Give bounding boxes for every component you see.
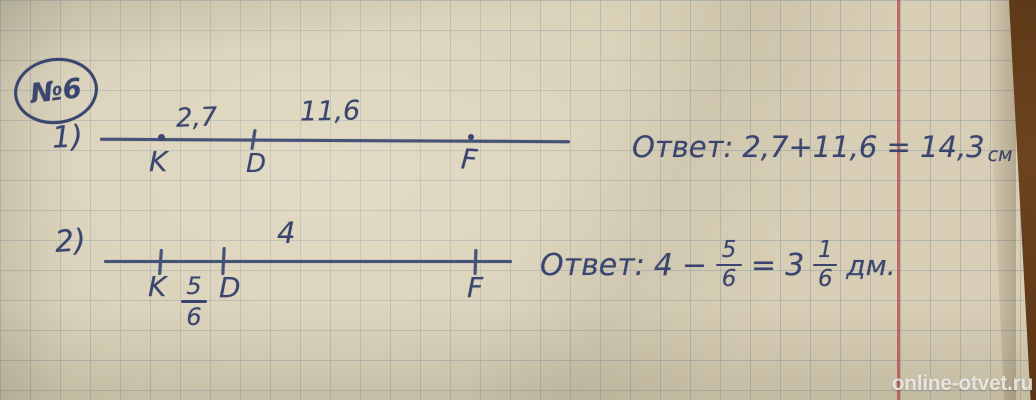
red-margin-line — [897, 0, 900, 400]
item-2-label: 2) — [54, 225, 87, 259]
answer-2-fraction-1-numerator: 5 — [722, 239, 737, 262]
notebook-photo: №6 1) K D F 2,7 11,6 Ответ: 2,7+11,6 = 1… — [0, 0, 1036, 400]
answer-2-whole-part: 3 — [785, 248, 804, 283]
point-k1-label: K — [149, 147, 167, 176]
answer-2-fraction-2-denominator: 6 — [818, 268, 833, 291]
answer-2-fraction-1-denominator: 6 — [722, 268, 737, 291]
item-1-label: 1) — [51, 121, 83, 154]
watermark: online-otvet.ru — [892, 372, 1033, 396]
answer-2-fraction-2-numerator: 1 — [818, 239, 833, 262]
fraction-kd-2-denominator: 6 — [186, 305, 201, 329]
answer-2-minuend: 4 — [654, 248, 673, 283]
answer-2: Ответ: 4 − 5 6 = 3 1 6 дм. — [540, 230, 896, 300]
point-d1-label: D — [246, 151, 266, 178]
point-k2-label: K — [148, 272, 166, 301]
answer-2-fraction-2: 1 6 — [813, 239, 837, 292]
fraction-kd-2: 5 6 — [181, 274, 207, 329]
answer-2-unit: дм. — [846, 249, 895, 282]
point-d2-label: D — [219, 273, 241, 302]
answer-2-equals-sign: = — [751, 248, 776, 283]
point-k1-dot — [158, 134, 165, 141]
answer-1: Ответ: 2,7+11,6 = 14,3 см — [632, 128, 1012, 166]
segment-label-kd-1: 2,7 — [176, 104, 218, 133]
answer-1-prefix: Ответ: — [632, 130, 733, 164]
segment-label-df-1: 11,6 — [300, 97, 361, 126]
problem-number-badge: №6 — [10, 53, 101, 129]
point-f1-dot — [468, 134, 474, 140]
answer-2-prefix: Ответ: — [540, 248, 645, 283]
paper-edge-shadow — [986, 0, 1016, 400]
fraction-kd-2-numerator: 5 — [186, 274, 201, 298]
point-f1-label: F — [460, 144, 478, 174]
problem-number: №6 — [29, 72, 84, 109]
number-line-1 — [100, 138, 570, 143]
answer-2-minus-sign: − — [682, 248, 707, 283]
segment-label-kf-2: 4 — [277, 218, 295, 248]
answer-1-expression: 2,7+11,6 = 14,3 — [742, 130, 984, 164]
number-line-2 — [104, 260, 512, 263]
point-f2-label: F — [467, 273, 483, 302]
answer-2-fraction-1: 5 6 — [716, 239, 742, 292]
